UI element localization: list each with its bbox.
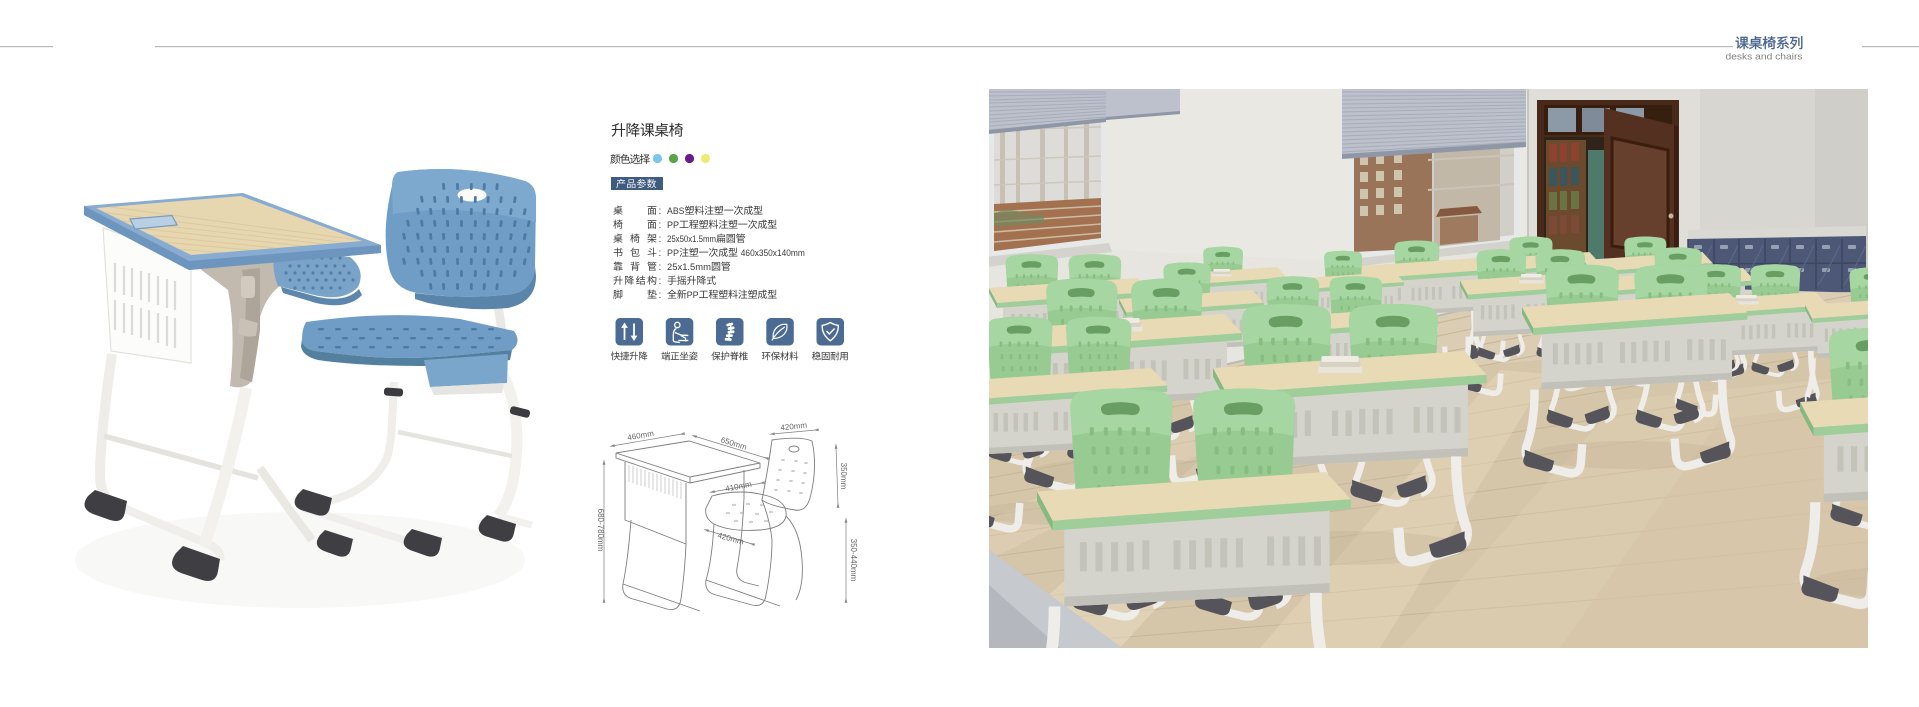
svg-text:PP: PP (667, 248, 679, 258)
svg-text:420mm: 420mm (780, 421, 808, 433)
svg-text::: : (659, 276, 662, 287)
svg-text:460mm: 460mm (627, 429, 655, 443)
svg-text:350mm: 350mm (839, 463, 848, 490)
svg-text:680-780mm: 680-780mm (596, 509, 605, 552)
svg-text::: : (659, 248, 662, 259)
svg-text:ABS: ABS (667, 206, 685, 216)
svg-text::: : (659, 234, 662, 245)
svg-text:420mm: 420mm (717, 531, 745, 547)
svg-text:PP: PP (687, 290, 699, 300)
svg-text:25x1.5mm: 25x1.5mm (667, 262, 711, 272)
svg-text:410mm: 410mm (725, 480, 753, 494)
svg-text:PP: PP (667, 220, 679, 230)
svg-text:350-440mm: 350-440mm (849, 539, 858, 582)
svg-text::: : (659, 290, 662, 301)
svg-text::: : (659, 262, 662, 273)
svg-text:25x50x1.5mm: 25x50x1.5mm (667, 234, 716, 244)
svg-text::: : (659, 220, 662, 231)
svg-text:650mm: 650mm (720, 435, 748, 452)
svg-text::: : (659, 206, 662, 217)
svg-text:desks and chairs: desks and chairs (1726, 52, 1804, 62)
svg-text:460x350x140mm: 460x350x140mm (741, 248, 805, 258)
